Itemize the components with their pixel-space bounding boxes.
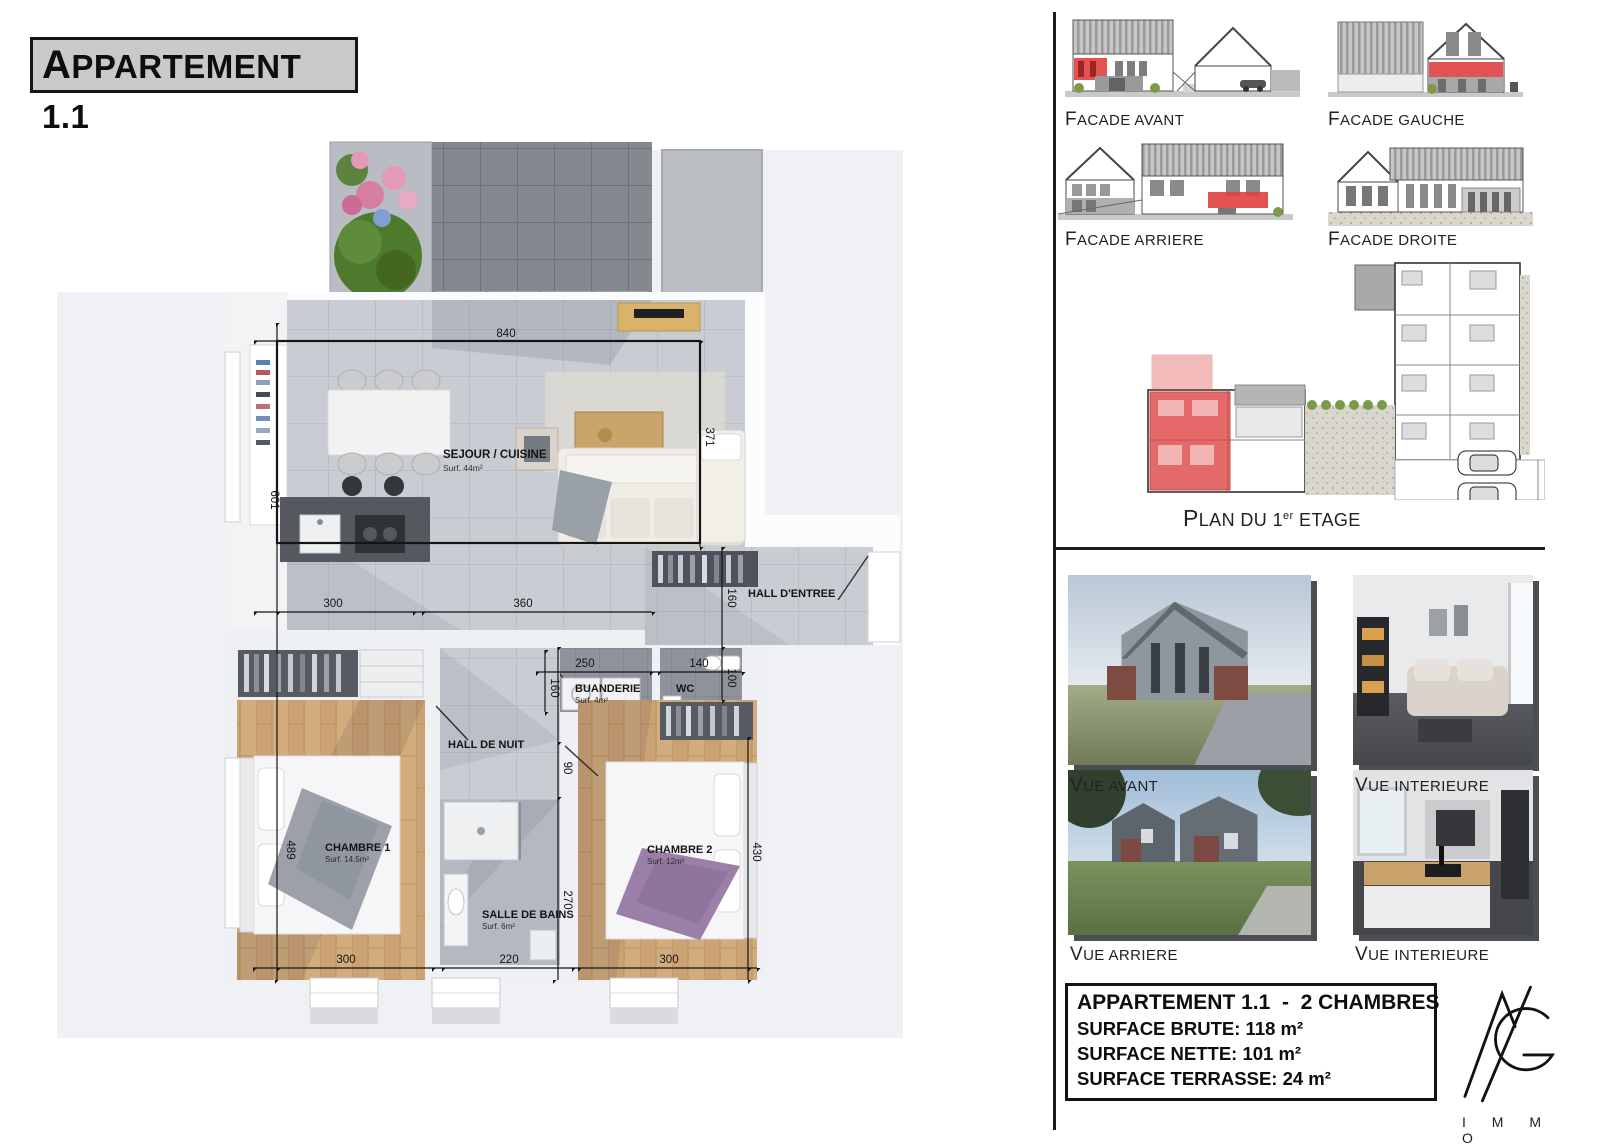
chambre1-closet xyxy=(238,650,423,697)
facade-droite-drawing xyxy=(1328,140,1533,228)
site-plan-label: PLAN DU 1er ETAGE xyxy=(1183,505,1361,532)
label-chambre2: CHAMBRE 2 xyxy=(647,844,712,856)
summary-surface-nette: SURFACE NETTE: 101 m² xyxy=(1077,1043,1425,1065)
label-sejour: SEJOUR / CUISINE xyxy=(443,449,547,461)
site-plan-label-suffix: ETAGE xyxy=(1294,510,1361,530)
label-wc: WC xyxy=(676,683,694,695)
dim-250: 250 xyxy=(575,658,594,670)
dining-table xyxy=(328,370,450,475)
apartment-summary-box: APPARTEMENT 1.1 - 2 CHAMBRES SURFACE BRU… xyxy=(1065,983,1437,1101)
apartment-floor-plan: 840 601 489 371 160 100 300 360 250 140 … xyxy=(0,0,1040,1146)
dim-601: 601 xyxy=(268,490,280,509)
facade-avant-label: FACADE AVANT xyxy=(1065,109,1184,131)
photo-vue-interieure1-label: VUE INTERIEURE xyxy=(1355,775,1489,797)
label-buanderie: BUANDERIE xyxy=(575,683,640,695)
site-plan-label-sup: er xyxy=(1283,510,1294,522)
agency-name: I M M O xyxy=(1462,1114,1578,1146)
summary-title: APPARTEMENT 1.1 - 2 CHAMBRES xyxy=(1077,991,1425,1015)
dim-220: 220 xyxy=(499,954,518,966)
room-chambre-2 xyxy=(565,700,757,980)
dim-300a: 300 xyxy=(323,598,342,610)
site-plan-label-prefix: PLAN DU 1 xyxy=(1183,510,1283,530)
label-buanderie-surf: Surf. 4m² xyxy=(575,696,608,705)
facade-gauche-drawing xyxy=(1328,14,1523,106)
facade-arriere-drawing xyxy=(1058,140,1293,228)
dim-300c: 300 xyxy=(659,954,678,966)
photo-vue-interieure2-label: VUE INTERIEURE xyxy=(1355,944,1489,966)
label-chambre2-surf: Surf. 12m² xyxy=(647,857,685,866)
label-hall-nuit: HALL DE NUIT xyxy=(448,739,524,751)
ag-monogram-icon xyxy=(1458,985,1568,1103)
dim-300b: 300 xyxy=(336,954,355,966)
facade-avant-drawing xyxy=(1065,14,1300,106)
facade-gauche-label: FACADE GAUCHE xyxy=(1328,109,1465,131)
label-chambre1: CHAMBRE 1 xyxy=(325,842,390,854)
agency-logo: I M M O xyxy=(1458,985,1578,1140)
plan-sheet: APPARTEMENT 1.1 xyxy=(0,0,1620,1146)
facade-droite-label: FACADE DROITE xyxy=(1328,229,1457,251)
dim-430: 430 xyxy=(750,842,762,861)
photo-vue-avant-label: VUE AVANT xyxy=(1070,775,1158,797)
label-hall-entree: HALL D'ENTREE xyxy=(748,588,835,600)
room-hall-de-nuit xyxy=(440,648,560,800)
site-plan-drawing xyxy=(1140,255,1545,500)
label-salle-de-bains: SALLE DE BAINS xyxy=(482,909,574,921)
dim-100: 100 xyxy=(725,668,737,687)
label-chambre1-surf: Surf. 14.5m² xyxy=(325,855,369,864)
dim-160-buanderie: 160 xyxy=(548,678,560,697)
dim-270: 270 xyxy=(561,890,573,909)
site-plan-cars xyxy=(1458,451,1516,500)
dim-140: 140 xyxy=(689,658,708,670)
dim-371: 371 xyxy=(703,427,715,446)
vertical-divider xyxy=(1053,12,1056,1130)
terrace xyxy=(330,142,652,308)
summary-surface-terrasse: SURFACE TERRASSE: 24 m² xyxy=(1077,1068,1425,1090)
summary-surface-brute: SURFACE BRUTE: 118 m² xyxy=(1077,1018,1425,1040)
chambre2-closet xyxy=(660,702,753,740)
photo-vue-interieure-salon xyxy=(1353,575,1533,765)
dim-360: 360 xyxy=(513,598,532,610)
label-salle-de-bains-surf: Surf. 6m² xyxy=(482,922,515,931)
dim-160-hall: 160 xyxy=(725,588,737,607)
facade-arriere-label: FACADE ARRIERE xyxy=(1065,229,1204,251)
photo-vue-arriere-label: VUE ARRIERE xyxy=(1070,944,1178,966)
label-sejour-surf: Surf. 44m² xyxy=(443,463,483,473)
dim-840: 840 xyxy=(496,328,515,340)
hall-wardrobe xyxy=(652,551,758,587)
dim-90: 90 xyxy=(561,762,573,775)
photo-vue-avant xyxy=(1068,575,1311,765)
entrance-door xyxy=(868,552,900,642)
dim-489: 489 xyxy=(284,840,296,859)
room-salle-de-bains xyxy=(440,800,560,965)
bottom-windows xyxy=(310,978,678,1024)
horizontal-divider xyxy=(1055,547,1545,550)
